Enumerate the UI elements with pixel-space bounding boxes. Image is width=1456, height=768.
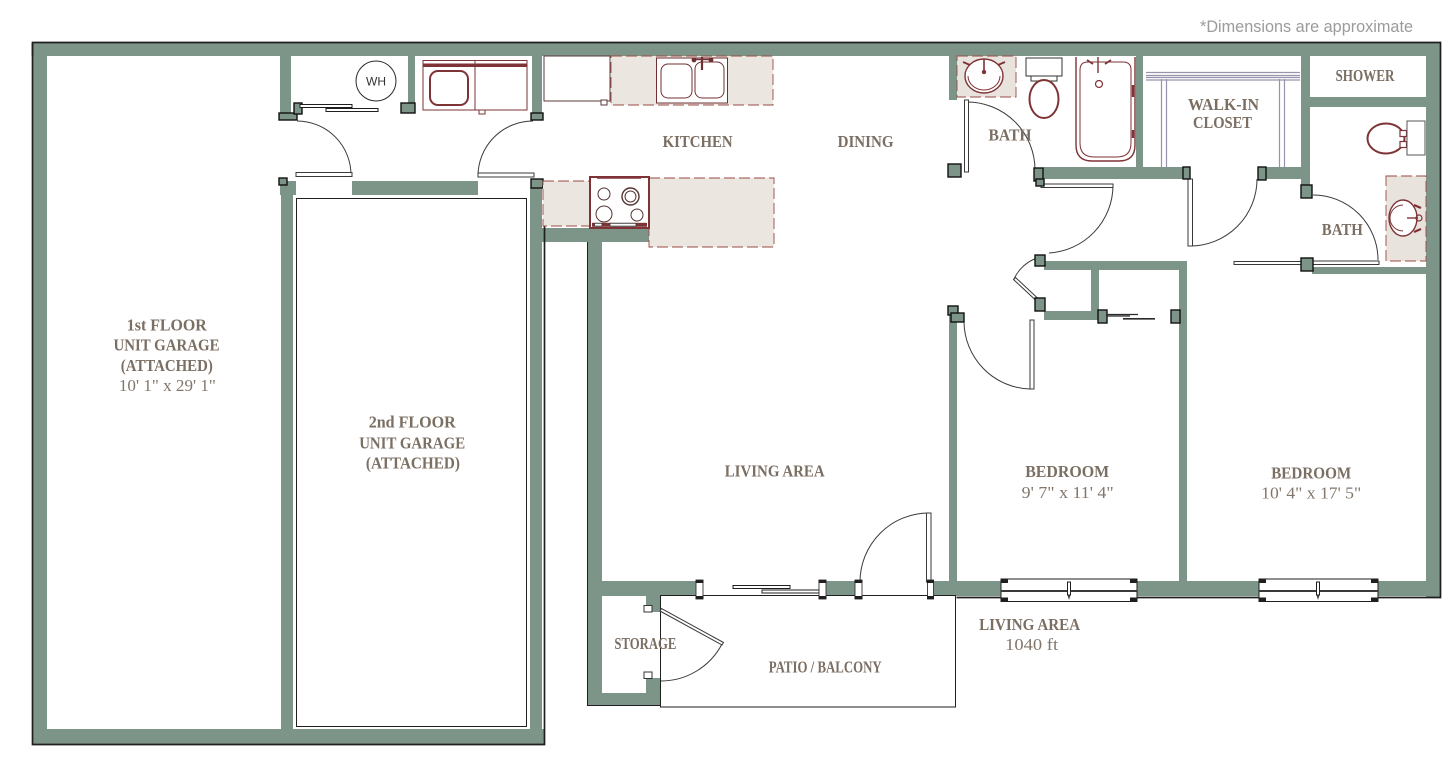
svg-text:WH: WH [366,75,386,89]
svg-text:LIVING AREA: LIVING AREA [979,615,1081,634]
svg-text:PATIO / BALCONY: PATIO / BALCONY [769,657,882,676]
svg-text:*Dimensions are approximate: *Dimensions are approximate [1200,17,1413,36]
svg-text:STORAGE: STORAGE [614,634,676,653]
svg-text:BATH: BATH [1322,220,1363,239]
svg-text:1040 ft: 1040 ft [1005,635,1058,654]
svg-text:UNIT GARAGE: UNIT GARAGE [359,433,465,452]
svg-text:KITCHEN: KITCHEN [663,132,734,151]
svg-text:10' 1" x 29' 1": 10' 1" x 29' 1" [119,376,216,395]
svg-text:WALK-IN: WALK-IN [1188,95,1260,114]
svg-text:1st FLOOR: 1st FLOOR [127,316,208,335]
svg-text:BATH: BATH [989,126,1032,145]
svg-text:2nd FLOOR: 2nd FLOOR [369,413,457,432]
svg-text:SHOWER: SHOWER [1336,66,1396,85]
svg-text:UNIT GARAGE: UNIT GARAGE [114,335,220,354]
svg-text:DINING: DINING [838,132,894,151]
svg-text:(ATTACHED): (ATTACHED) [121,356,213,375]
svg-text:CLOSET: CLOSET [1193,113,1253,132]
svg-text:BEDROOM: BEDROOM [1025,462,1109,481]
svg-text:BEDROOM: BEDROOM [1271,464,1351,483]
svg-text:9' 7" x 11' 4": 9' 7" x 11' 4" [1022,483,1114,502]
svg-text:10' 4" x 17' 5": 10' 4" x 17' 5" [1261,484,1361,503]
svg-text:(ATTACHED): (ATTACHED) [366,454,460,473]
svg-text:LIVING AREA: LIVING AREA [725,461,826,480]
